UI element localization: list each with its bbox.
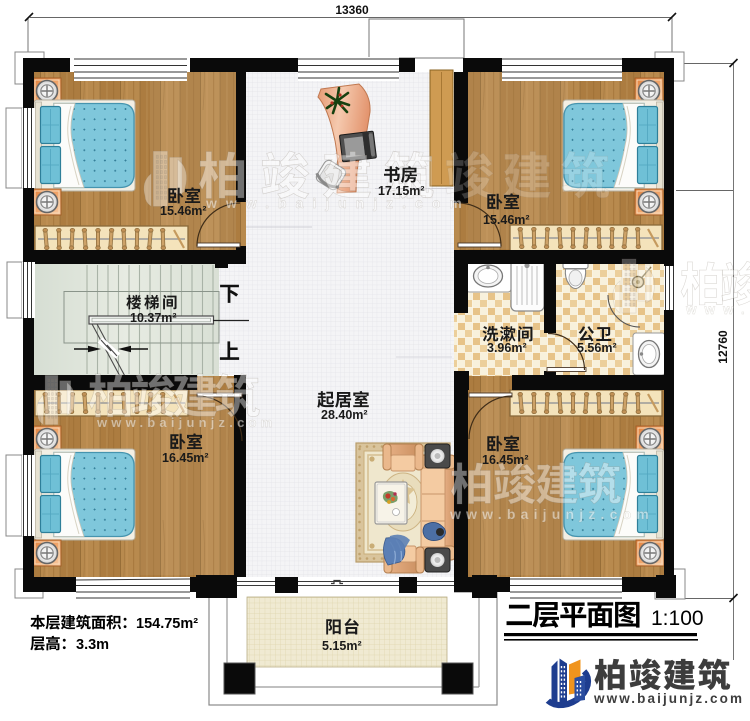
svg-text:16.45m²: 16.45m²: [162, 451, 209, 465]
svg-text:12760: 12760: [716, 330, 730, 364]
svg-text:www.baijunjz.com: www.baijunjz.com: [593, 691, 744, 706]
svg-text:www.baijunjz.com: www.baijunjz.com: [449, 506, 654, 522]
svg-text:15.46m²: 15.46m²: [483, 213, 530, 227]
svg-text:154.75m²: 154.75m²: [136, 616, 198, 632]
svg-text:5.56m²: 5.56m²: [577, 341, 617, 355]
svg-text:1:100: 1:100: [651, 607, 704, 630]
svg-text:www.baijunjz.com: www.baijunjz.com: [96, 415, 276, 430]
svg-text:www.baijunjz.com: www.baijunjz.com: [205, 195, 471, 211]
svg-text:17.15m²: 17.15m²: [378, 184, 425, 198]
svg-text:13360: 13360: [335, 3, 369, 17]
svg-text:28.40m²: 28.40m²: [321, 408, 368, 422]
svg-text:www.baijunjz.com: www.baijunjz.com: [685, 302, 750, 317]
svg-text:15.46m²: 15.46m²: [160, 204, 207, 218]
svg-text:10.37m²: 10.37m²: [130, 311, 177, 325]
svg-text:5.15m²: 5.15m²: [322, 639, 362, 653]
svg-text:3.3m: 3.3m: [76, 637, 109, 653]
svg-text:3.96m²: 3.96m²: [487, 341, 527, 355]
svg-text:16.45m²: 16.45m²: [482, 453, 529, 467]
